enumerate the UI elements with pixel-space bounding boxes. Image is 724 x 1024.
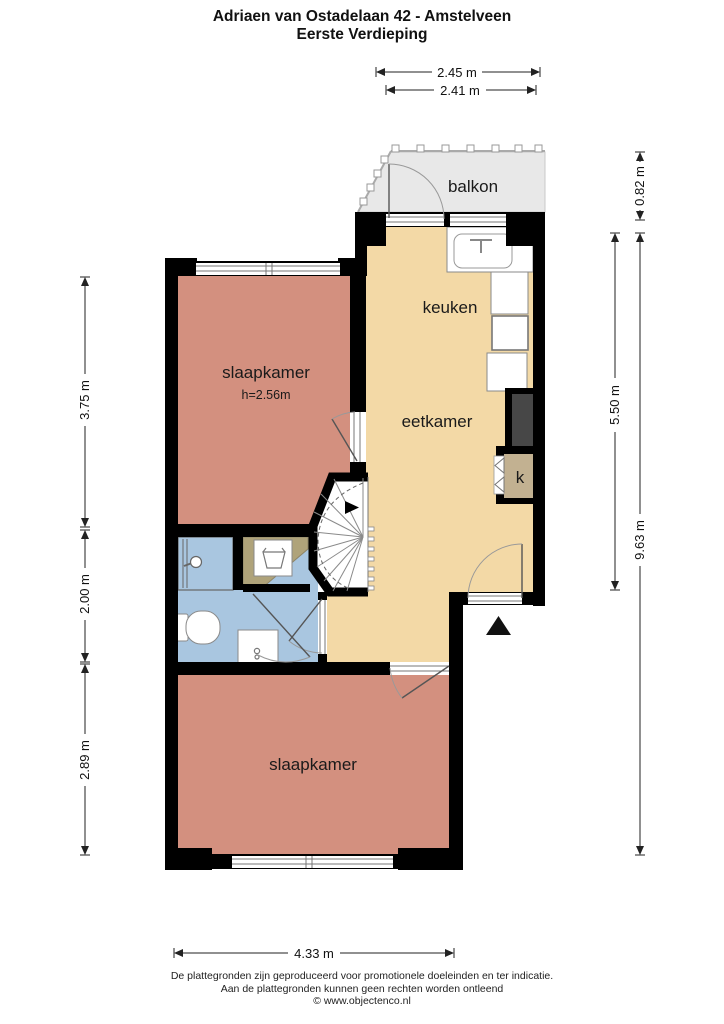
kitchen-appliance-1: [491, 272, 528, 314]
balcony-door-threshold: [386, 214, 444, 226]
dim-left-middle: 2.00 m: [77, 530, 92, 662]
kitchen-appliance-2: [492, 316, 528, 350]
entrance-door-threshold: [468, 593, 522, 604]
disclaimer: De plattegronden zijn geproduceerd voor …: [0, 970, 724, 1008]
dining-label: eetkamer: [402, 412, 473, 431]
svg-text:3.75 m: 3.75 m: [77, 380, 92, 420]
svg-text:5.50 m: 5.50 m: [607, 385, 622, 425]
balcony-label: balkon: [448, 177, 498, 196]
svg-text:2.89 m: 2.89 m: [77, 740, 92, 780]
kitchen-label: keuken: [423, 298, 478, 317]
entrance-arrow-icon: [486, 616, 511, 635]
toilet-bowl: [186, 611, 220, 644]
kitchen-sink-icon: [454, 234, 512, 268]
svg-text:4.33 m: 4.33 m: [294, 946, 334, 961]
kitchen-appliance-3: [487, 353, 527, 391]
dim-left-lower: 2.89 m: [77, 664, 92, 855]
dim-bottom: 4.33 m: [174, 946, 454, 961]
dim-left-upper: 3.75 m: [77, 277, 92, 527]
bedroom-top-height-label: h=2.56m: [242, 388, 291, 402]
svg-text:2.45 m: 2.45 m: [437, 65, 477, 80]
svg-text:0.82 m: 0.82 m: [632, 166, 647, 206]
dim-right-upper: 5.50 m: [607, 233, 622, 590]
bedroom-top-label: slaapkamer: [222, 363, 310, 382]
bedroom-bottom-label: slaapkamer: [269, 755, 357, 774]
kitchen-window: [450, 214, 506, 226]
washbasin: [238, 630, 278, 664]
spiral-stairs: [313, 477, 374, 592]
floorplan-svg: balkon keuken eetkamer slaapkamer h=2.56…: [0, 0, 724, 1024]
bedroom-bottom-window: [232, 856, 393, 868]
hall-floor: [327, 592, 449, 662]
svg-text:2.00 m: 2.00 m: [77, 574, 92, 614]
bathroom-door-threshold: [318, 600, 327, 654]
bedroom-top-window: [196, 263, 340, 275]
closet-label: k: [516, 468, 525, 487]
svg-text:9.63 m: 9.63 m: [632, 520, 647, 560]
disclaimer-line-3: © www.objectenco.nl: [0, 995, 724, 1008]
disclaimer-line-1: De plattegronden zijn geproduceerd voor …: [0, 970, 724, 983]
dim-right-balcony: 0.82 m: [632, 152, 647, 220]
dim-top-outer: 2.45 m: [376, 65, 540, 80]
washing-machine: [254, 540, 292, 576]
dim-right-total: 9.63 m: [632, 233, 647, 855]
toilet: [173, 611, 220, 644]
floorplan-page: Adriaen van Ostadelaan 42 - Amstelveen E…: [0, 0, 724, 1024]
disclaimer-line-2: Aan de plattegronden kunnen geen rechten…: [0, 983, 724, 996]
svg-text:2.41 m: 2.41 m: [440, 83, 480, 98]
dim-top-inner: 2.41 m: [386, 83, 536, 98]
